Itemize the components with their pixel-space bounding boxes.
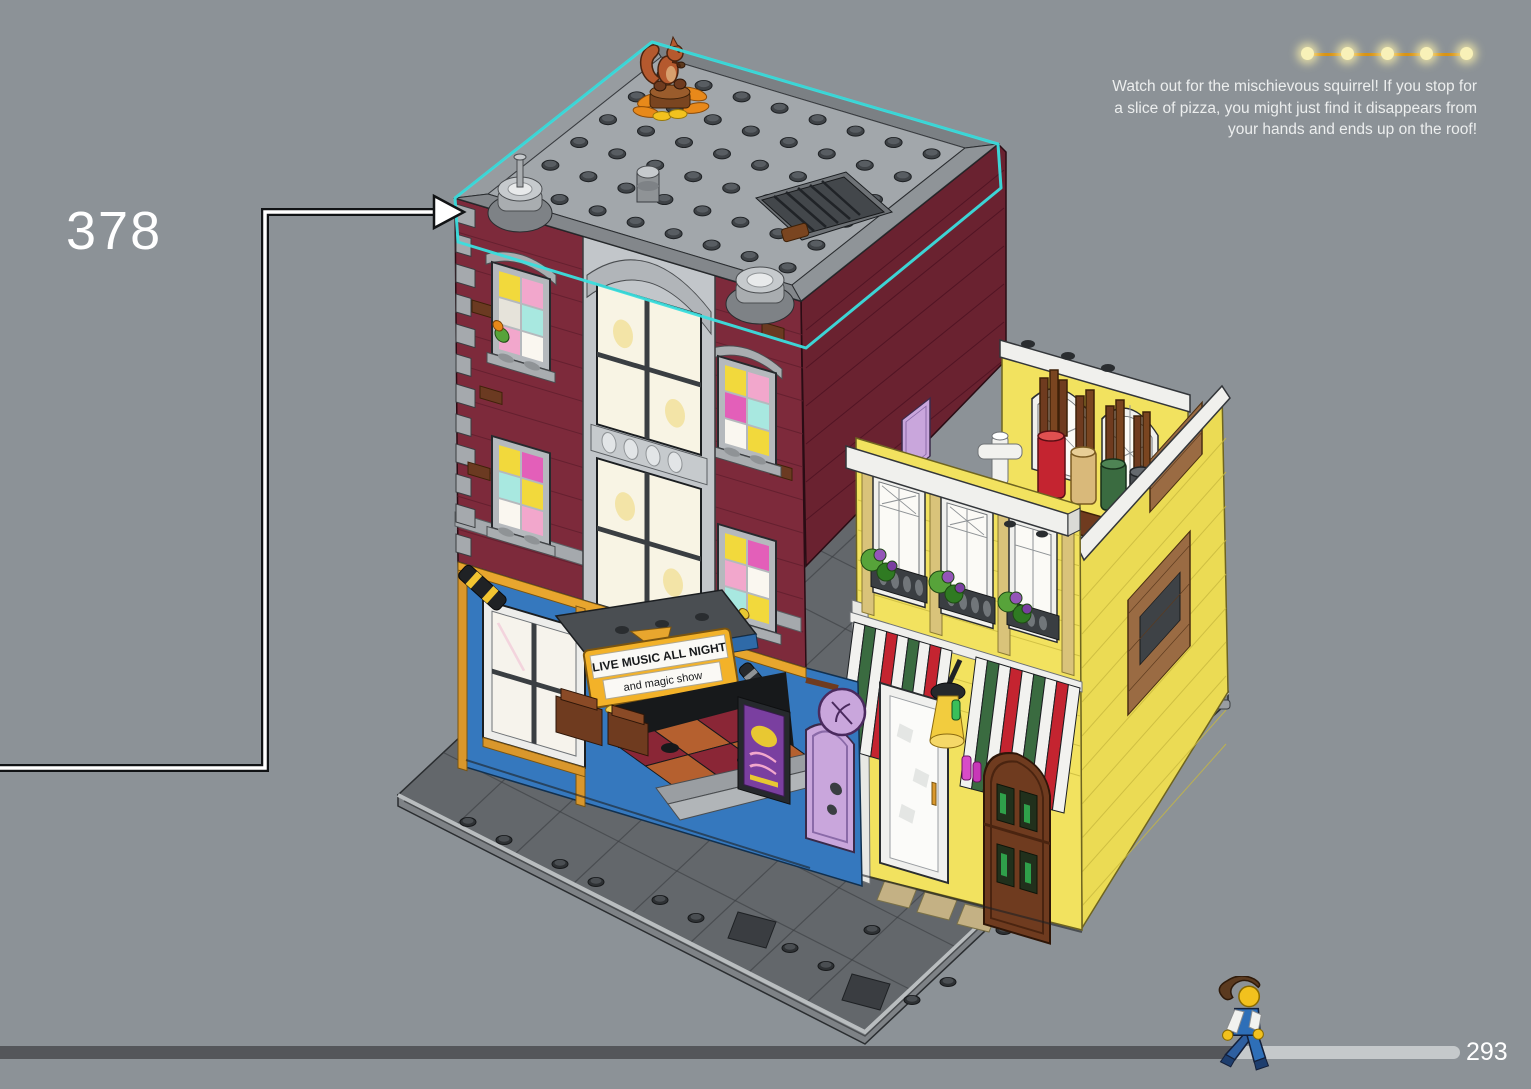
annotation-line: Watch out for the mischievous squirrel! …	[1112, 76, 1477, 98]
tailor-door	[806, 718, 854, 852]
brown-door	[984, 744, 1050, 944]
stained-glass-window	[487, 435, 555, 557]
string-light-bulb-icon	[1341, 47, 1354, 60]
jazz-poster	[738, 697, 790, 804]
page-number: 293	[1466, 1038, 1508, 1067]
annotation-line: your hands and ends up on the roof!	[1112, 119, 1477, 141]
minifigure-walker-icon	[1212, 976, 1278, 1074]
central-window-bay	[583, 236, 715, 647]
instruction-page: LIVE MUSIC ALL NIGHT and magic show	[0, 0, 1531, 1089]
string-light-bulb-icon	[1381, 47, 1394, 60]
progress-filled	[0, 1046, 1234, 1059]
tailor-shop-sign	[819, 689, 865, 735]
pizzeria-front-face	[838, 438, 1082, 944]
building-illustration: LIVE MUSIC ALL NIGHT and magic show	[0, 0, 1531, 1089]
callout-arrow	[0, 196, 464, 768]
string-light-bulb-icon	[1460, 47, 1473, 60]
string-light-bulb-icon	[1420, 47, 1433, 60]
chimney	[637, 166, 659, 202]
step-number: 378	[66, 200, 162, 262]
string-lights-icon	[1301, 46, 1473, 64]
balcony-window	[939, 495, 995, 630]
annotation-text: Watch out for the mischievous squirrel! …	[1112, 76, 1477, 141]
balcony-window	[871, 474, 927, 609]
balcony-window	[1007, 516, 1059, 643]
annotation-line: a slice of pizza, you might just find it…	[1112, 98, 1477, 120]
string-light-bulb-icon	[1301, 47, 1314, 60]
